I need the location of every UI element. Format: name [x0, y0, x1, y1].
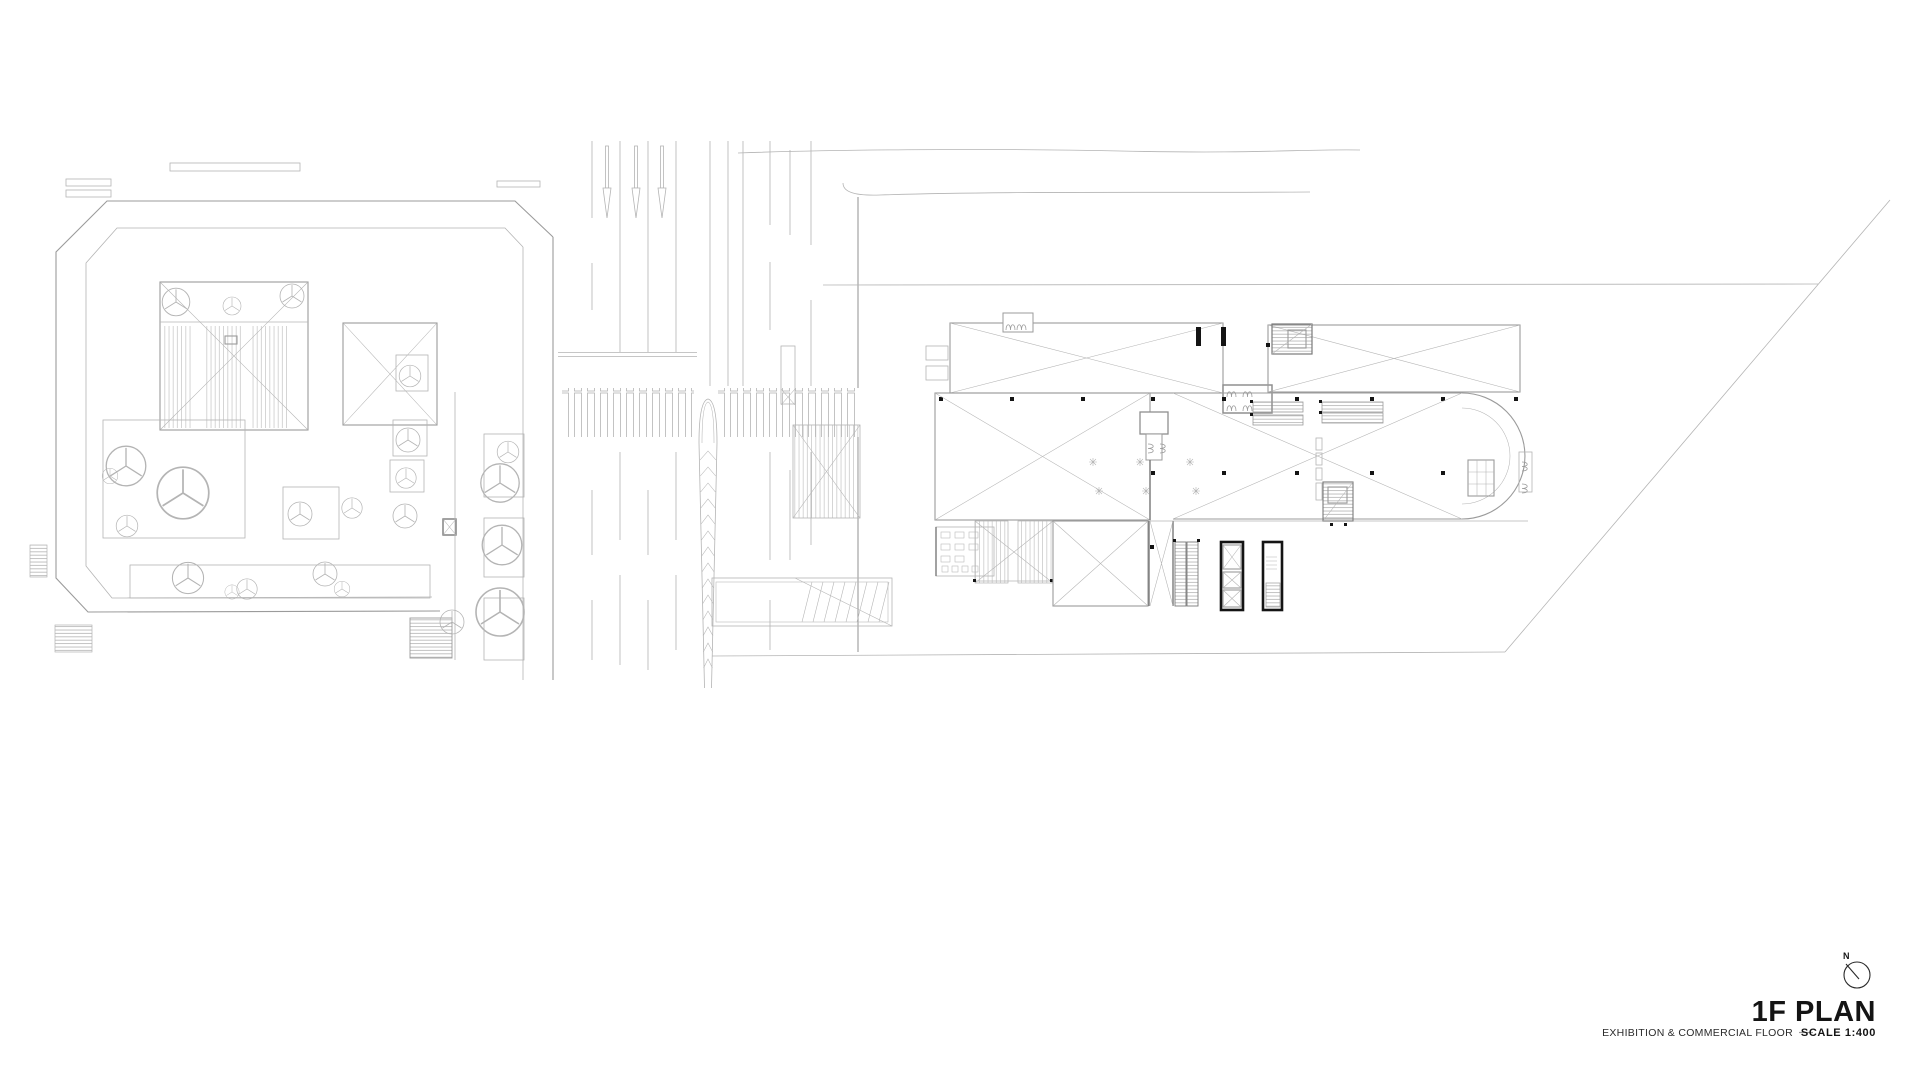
- tree-icon: [106, 446, 146, 486]
- tree-icon: [342, 498, 362, 518]
- stair-core-twin: [1173, 539, 1200, 606]
- tree-icon: [481, 464, 519, 502]
- planter-icon: [1095, 487, 1103, 495]
- main-building: [712, 313, 1532, 626]
- tree-icon: [223, 297, 241, 315]
- tree-icon: [280, 284, 304, 308]
- stair-northeast: [1266, 324, 1312, 354]
- park-block: [30, 163, 553, 658]
- tree-icon: [476, 588, 524, 636]
- park-pads: [283, 355, 456, 539]
- tree-icon: [237, 579, 257, 599]
- tree-icon: [313, 562, 337, 586]
- park-terrace: [102, 420, 245, 538]
- tree-icon: [396, 468, 416, 488]
- park-outer-boundary: [56, 201, 553, 612]
- tree-icon: [396, 428, 420, 452]
- plan-subtitle: EXHIBITION & COMMERCIAL FLOOR: [1602, 1027, 1793, 1039]
- stair-center: [1323, 482, 1353, 526]
- exhibition-hall-west: [926, 346, 1150, 520]
- north-band-west: [950, 313, 1226, 393]
- platform-bars: [66, 163, 540, 197]
- floor-plan-sheet: N 1F PLAN EXHIBITION & COMMERCIAL FLOOR …: [0, 0, 1921, 1081]
- traffic-arrows: [603, 146, 666, 218]
- north-label: N: [1843, 951, 1850, 961]
- plan-title: 1F PLAN: [1752, 996, 1876, 1028]
- crosswalk-west: [562, 388, 694, 437]
- tree-icon: [334, 581, 350, 597]
- planter-icon: [1186, 458, 1194, 466]
- tree-icon: [172, 562, 203, 593]
- park-stair-hatches: [30, 545, 452, 658]
- east-door: [1519, 452, 1532, 493]
- planter-icon: [1136, 458, 1144, 466]
- tree-icon: [482, 525, 522, 565]
- park-building-x: [343, 323, 437, 425]
- north-band-east: [1266, 324, 1520, 392]
- park-planting-strip: [130, 562, 430, 599]
- tree-icon: [162, 288, 190, 316]
- plaza-upper-line: [823, 283, 1818, 285]
- tree-icon: [399, 365, 421, 387]
- entrance-vestibule-center: [1140, 412, 1168, 520]
- site-boundary-diagonal: [1505, 200, 1890, 652]
- elevator-core-2: [1263, 542, 1282, 610]
- pool-ramp: [712, 578, 892, 626]
- median-chevrons: [699, 399, 717, 688]
- park-inner-boundary: [86, 228, 523, 598]
- north-arrow-icon: N: [1843, 951, 1870, 988]
- tree-icon: [393, 504, 417, 528]
- tree-icon: [116, 515, 138, 537]
- lane-markings-upper: [592, 141, 811, 386]
- road: [440, 141, 858, 688]
- louver-stack: [1316, 438, 1322, 500]
- planter-icon: [1192, 487, 1200, 495]
- stop-line: [558, 353, 697, 357]
- site-boundary-bottom: [712, 652, 1505, 656]
- north-sidewalk-line: [843, 183, 1310, 195]
- title-block: N 1F PLAN EXHIBITION & COMMERCIAL FLOOR …: [1602, 951, 1876, 1039]
- south-core-strip: [936, 521, 1282, 610]
- tree-icon: [102, 468, 118, 484]
- west-terrace: [793, 425, 860, 518]
- floor-plan-canvas: N 1F PLAN EXHIBITION & COMMERCIAL FLOOR …: [0, 0, 1921, 1081]
- planter-icon: [1089, 458, 1097, 466]
- tree-icon: [157, 467, 209, 519]
- elevator-core-1: [1221, 542, 1243, 610]
- park-building-hatched: [160, 282, 308, 430]
- tree-icon: [497, 441, 519, 463]
- north-entrance: [1003, 313, 1033, 332]
- plaza-steps: [926, 346, 948, 360]
- planter-icon: [1142, 487, 1150, 495]
- north-road-curb: [738, 150, 1360, 153]
- plaza-steps: [926, 366, 948, 380]
- tree-icon: [288, 502, 312, 526]
- service-grid-block: [1468, 460, 1494, 496]
- plan-scale: SCALE 1:400: [1801, 1027, 1876, 1039]
- sidewalk-planters: [440, 434, 524, 660]
